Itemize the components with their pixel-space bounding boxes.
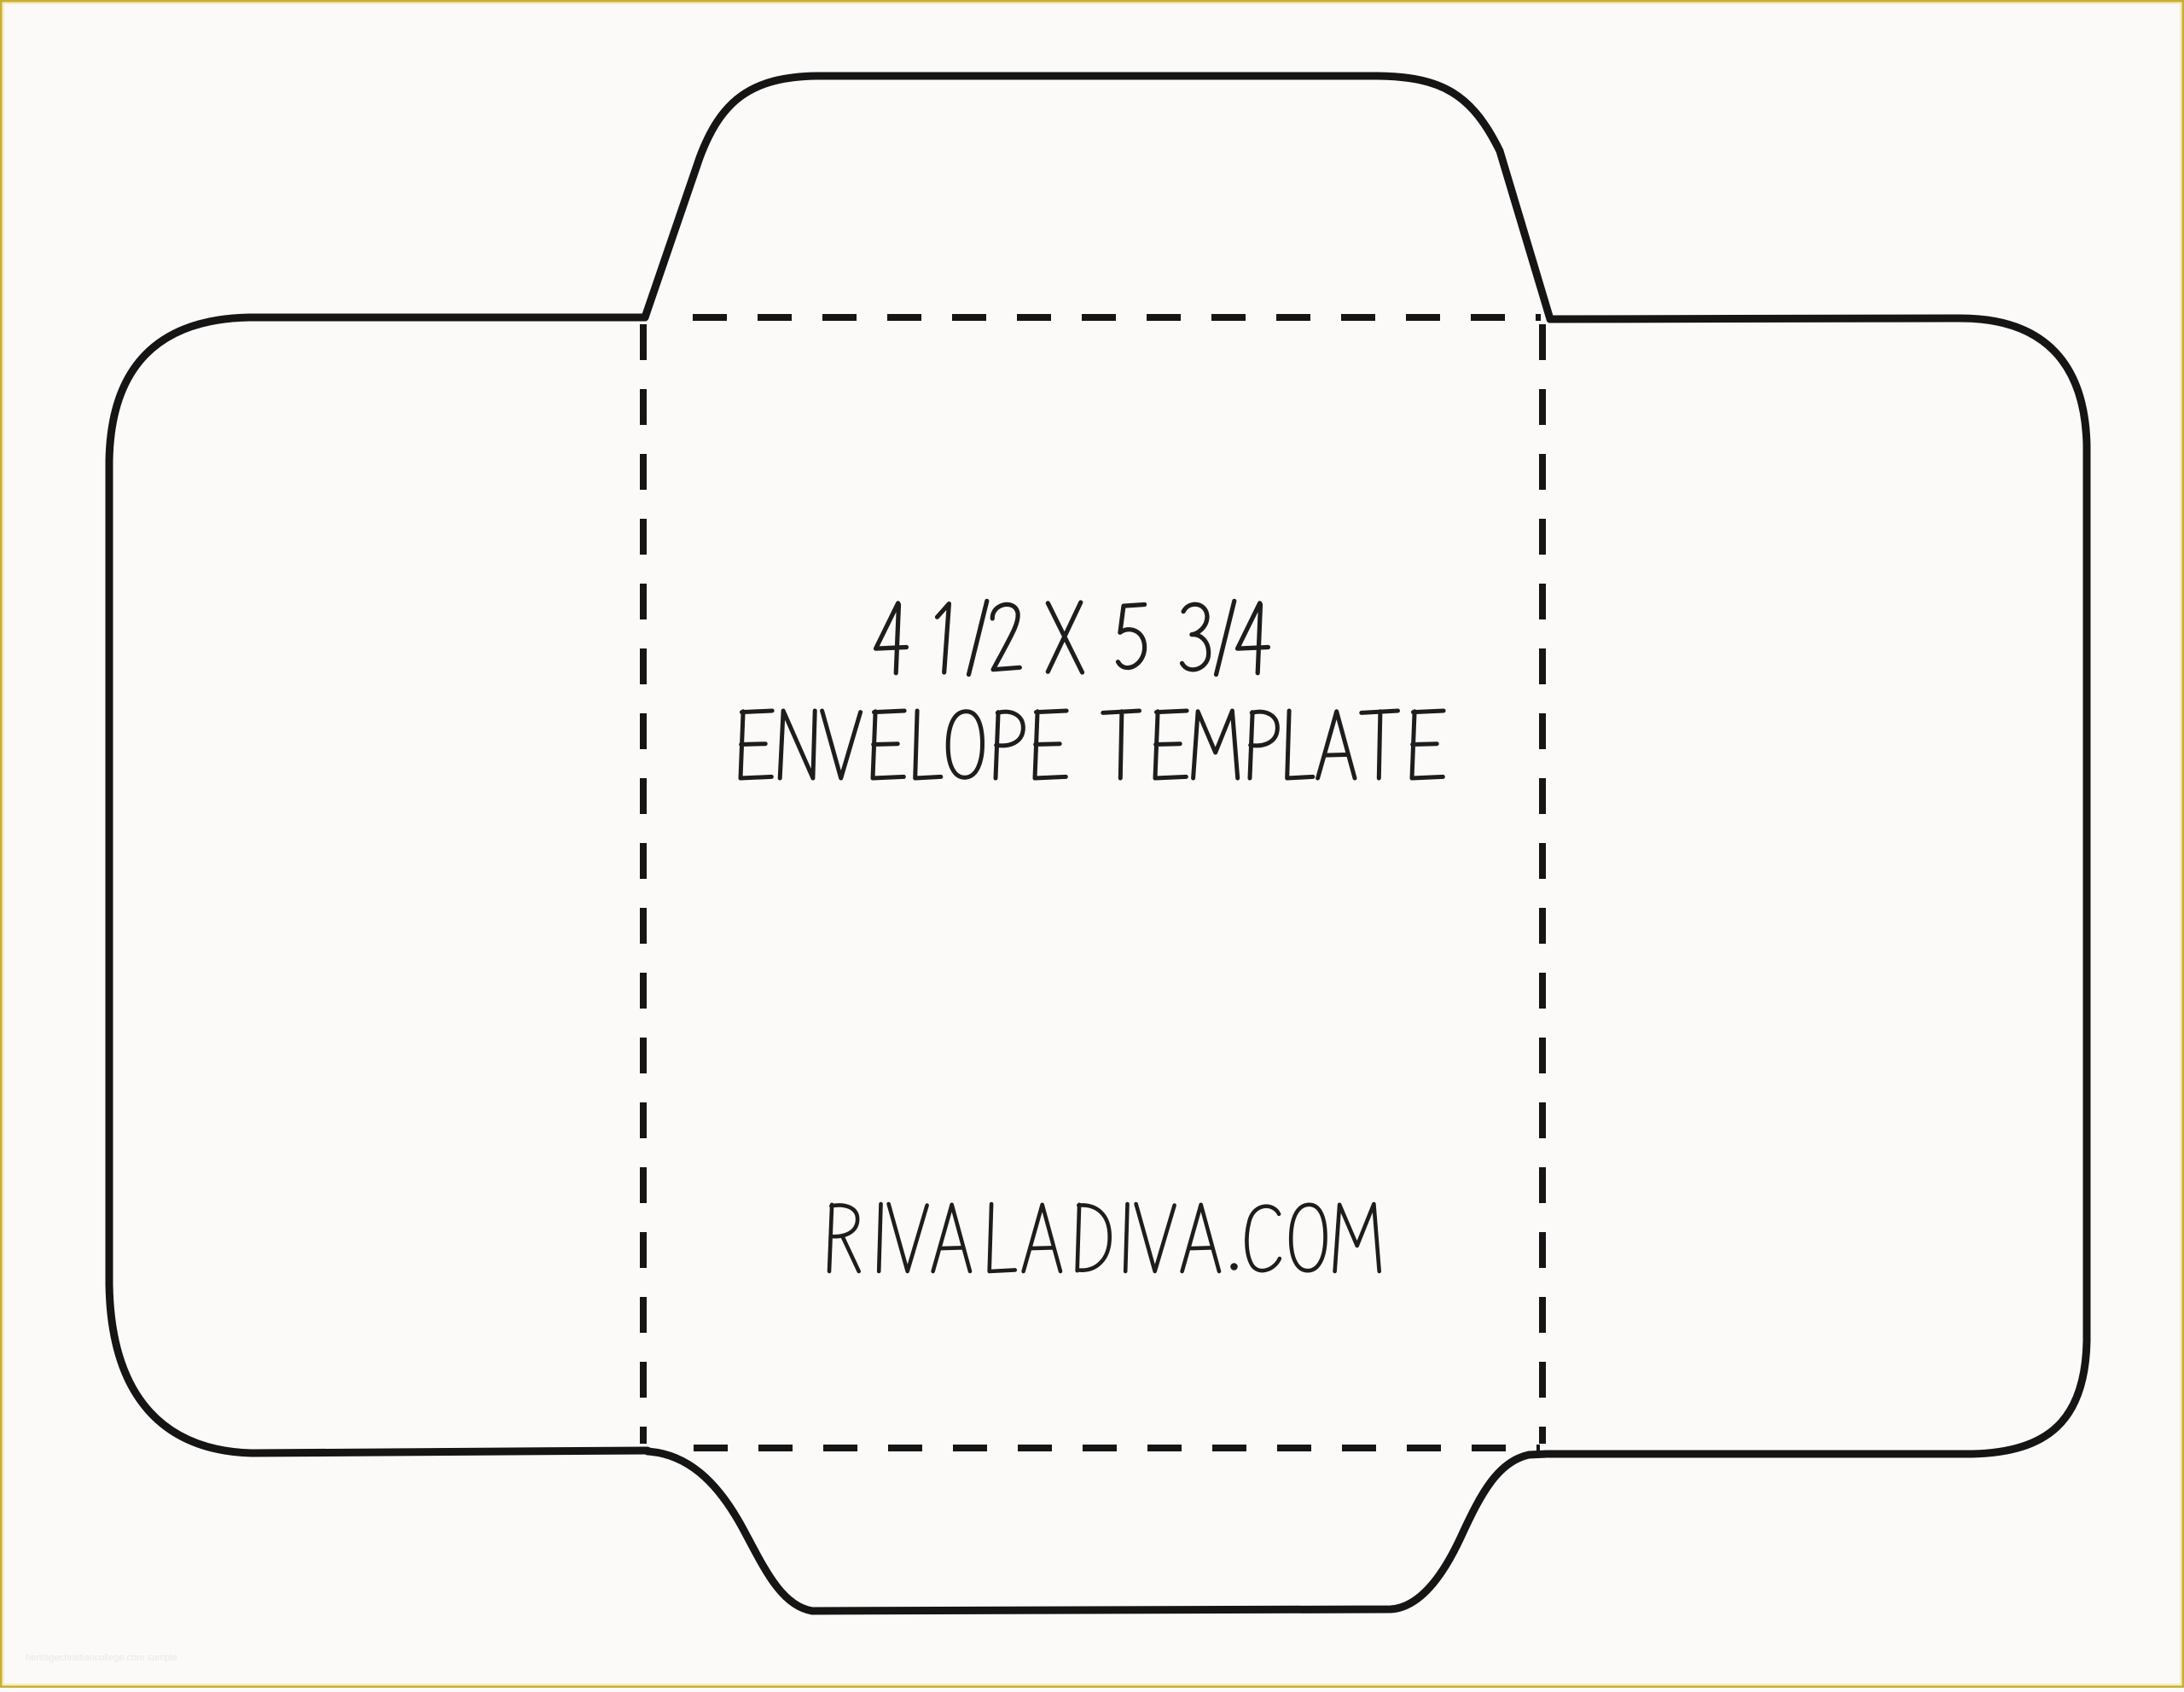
- svg-text:heritagechristiancollege.com s: heritagechristiancollege.com sample: [26, 1653, 177, 1663]
